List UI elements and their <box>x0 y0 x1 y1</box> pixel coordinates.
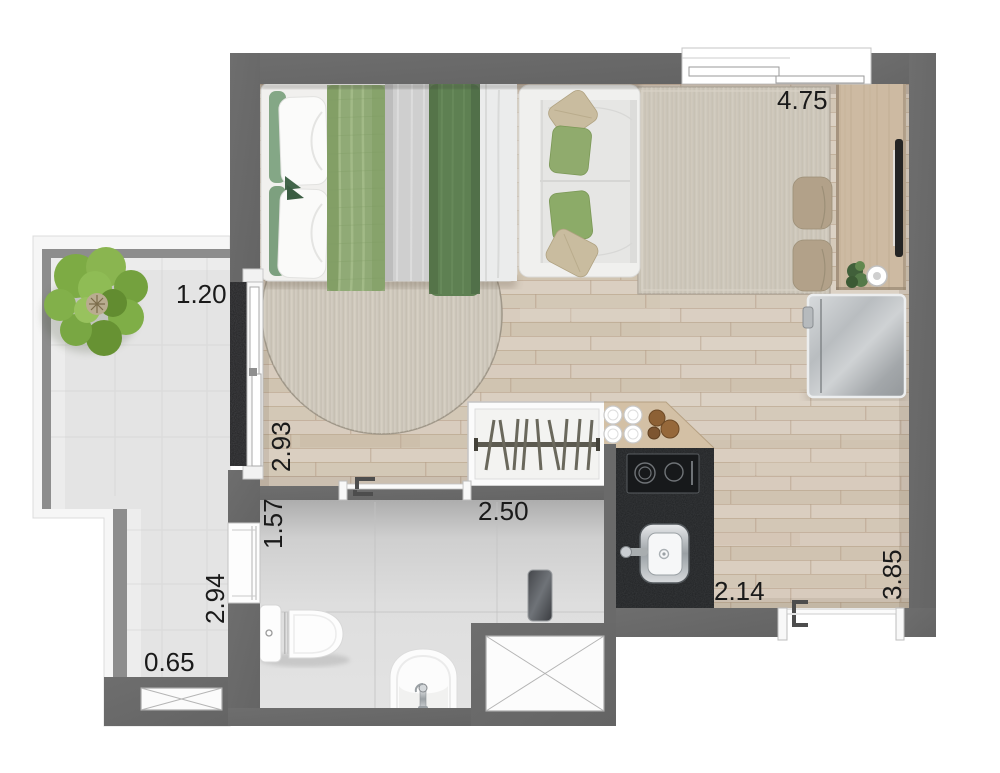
svg-text:1.20: 1.20 <box>176 279 227 309</box>
svg-text:0.65: 0.65 <box>144 647 195 677</box>
svg-text:2.93: 2.93 <box>266 421 296 472</box>
svg-text:2.14: 2.14 <box>714 576 765 606</box>
svg-text:2.94: 2.94 <box>200 573 230 624</box>
svg-text:2.50: 2.50 <box>478 496 529 526</box>
svg-text:1.57: 1.57 <box>258 498 288 549</box>
svg-text:3.85: 3.85 <box>877 549 907 600</box>
svg-text:4.75: 4.75 <box>777 85 828 115</box>
